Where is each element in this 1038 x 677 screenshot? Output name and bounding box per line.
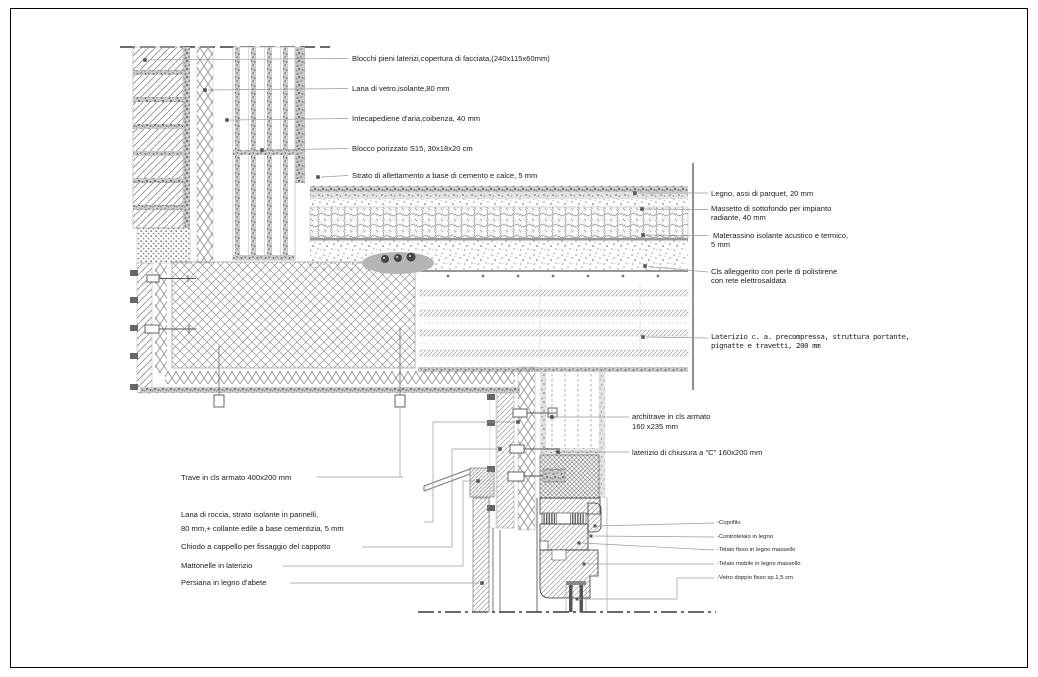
label-cls-alleggerito-2: con rete elettrosaldata: [711, 276, 786, 286]
mattonelle-block: [470, 468, 494, 497]
label-mattonelle: Mattonelle in laterizio: [181, 561, 252, 571]
label-strato-allettamento: Strato di allettamento a base di cemento…: [352, 171, 537, 181]
label-lana-di-vetro: Lana di vetro,isolante,80 mm: [352, 84, 450, 94]
label-blocco-porizzato: Blocco porizzato S15, 30x18x20 cm: [352, 144, 473, 154]
label-laterizio-chiusura: laterizio di chiusura a "C" 160x200 mm: [632, 448, 762, 458]
label-lana-roccia-1: Lana di roccia, strato isolante in panne…: [181, 510, 318, 520]
label-architrave-1: architrave in cls armato: [632, 412, 711, 422]
label-chiodo: Chiodo a cappello per fissaggio del capp…: [181, 542, 330, 552]
label-trave: Trave in cls armato 400x200 mm: [181, 473, 291, 483]
label-blocchi-pieni: Blocchi pieni laterizi,copertura di facc…: [352, 54, 550, 64]
label-intercapedine: Intecapediene d'aria,coibenza, 40 mm: [352, 114, 480, 124]
label-materassino-2: 5 mm: [711, 240, 730, 250]
label-coprifilo: -Coprifilo: [717, 520, 741, 527]
drawing-sheet: Blocchi pieni laterizi,copertura di facc…: [0, 0, 1038, 677]
edge-beam: [140, 252, 520, 477]
label-controtelaio: -Controtelaio in legno: [717, 534, 773, 541]
label-telaio-mobile: -Telaio mobile in legno massello: [717, 561, 801, 568]
label-laterizio-precompressa-2: pignatte e travetti, 200 mm: [711, 341, 820, 351]
label-telaio-fisso: -Telaio fisso in legno massello: [717, 547, 795, 554]
electrical-conduits: [362, 252, 434, 274]
label-architrave-2: 160 x235 mm: [632, 422, 678, 432]
label-lana-roccia-2: 80 mm,+ collante edile a base cementizia…: [181, 524, 344, 534]
label-vetro-doppio: -Vetro doppio fisso sp.1,5 cm: [717, 575, 793, 582]
brush-seal: [542, 513, 586, 524]
persiana-shutter: [473, 498, 489, 612]
label-massetto-2: radiante, 40 mm: [711, 213, 766, 223]
label-parquet: Legno, assi di parquet, 20 mm: [711, 189, 813, 199]
label-materassino-1: Materassino isolante acustico e termico,: [713, 231, 848, 241]
label-persiana: Persiana in legno d'abete: [181, 578, 266, 588]
coprifilo-profile: [588, 503, 601, 532]
